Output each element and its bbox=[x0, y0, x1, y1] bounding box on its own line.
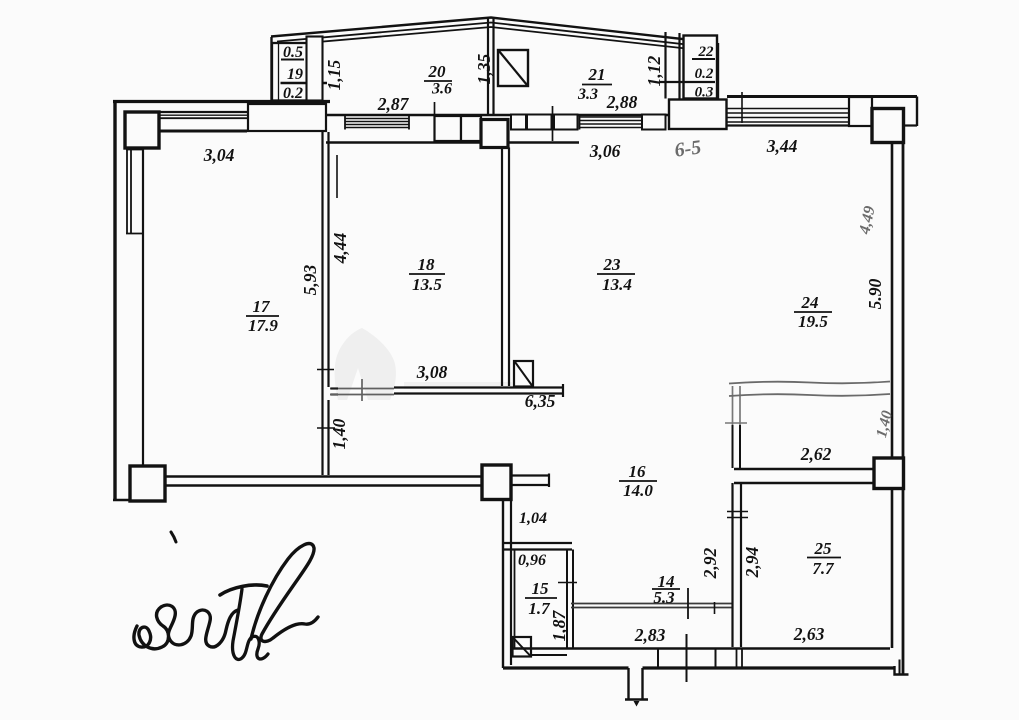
svg-text:2,87: 2,87 bbox=[377, 94, 410, 114]
svg-text:2,92: 2,92 bbox=[700, 547, 720, 579]
svg-text:15: 15 bbox=[532, 579, 550, 598]
svg-text:6,35: 6,35 bbox=[525, 391, 556, 411]
svg-text:20: 20 bbox=[428, 62, 447, 81]
svg-text:23: 23 bbox=[603, 255, 622, 274]
svg-text:4,44: 4,44 bbox=[330, 232, 350, 264]
svg-text:17: 17 bbox=[253, 297, 272, 316]
svg-text:0,96: 0,96 bbox=[518, 552, 546, 569]
svg-text:19: 19 bbox=[287, 66, 303, 83]
svg-text:3,06: 3,06 bbox=[589, 141, 621, 161]
svg-text:0.5: 0.5 bbox=[283, 44, 303, 61]
svg-text:3,44: 3,44 bbox=[766, 136, 798, 156]
svg-text:24: 24 bbox=[801, 293, 819, 312]
svg-text:17.9: 17.9 bbox=[248, 316, 278, 335]
svg-text:25: 25 bbox=[814, 539, 833, 558]
svg-text:22: 22 bbox=[698, 44, 715, 60]
svg-text:18: 18 bbox=[418, 255, 436, 274]
svg-text:6-5: 6-5 bbox=[673, 136, 702, 161]
svg-text:5.3: 5.3 bbox=[653, 588, 675, 607]
svg-text:1,35: 1,35 bbox=[474, 53, 494, 84]
svg-text:1,40: 1,40 bbox=[329, 418, 349, 449]
svg-text:1.7: 1.7 bbox=[528, 599, 551, 618]
svg-text:2,63: 2,63 bbox=[793, 624, 825, 644]
svg-text:2,88: 2,88 bbox=[606, 92, 638, 112]
svg-text:7.7: 7.7 bbox=[812, 559, 835, 578]
svg-text:1,04: 1,04 bbox=[519, 510, 547, 527]
svg-text:14.0: 14.0 bbox=[623, 481, 653, 500]
svg-text:16: 16 bbox=[629, 462, 647, 481]
svg-text:2,83: 2,83 bbox=[634, 625, 666, 645]
svg-text:3,08: 3,08 bbox=[416, 362, 448, 382]
svg-text:3.6: 3.6 bbox=[431, 81, 452, 98]
svg-text:5.90: 5.90 bbox=[865, 278, 885, 309]
svg-text:13.4: 13.4 bbox=[602, 275, 632, 294]
svg-text:19.5: 19.5 bbox=[798, 312, 828, 331]
svg-text:0.3: 0.3 bbox=[695, 85, 714, 101]
svg-text:1,87: 1,87 bbox=[549, 609, 569, 641]
svg-text:2,62: 2,62 bbox=[800, 444, 832, 464]
svg-text:0.2: 0.2 bbox=[695, 66, 714, 82]
svg-text:1,15: 1,15 bbox=[324, 59, 344, 90]
svg-text:13.5: 13.5 bbox=[412, 275, 442, 294]
svg-text:3.3: 3.3 bbox=[577, 86, 598, 103]
svg-text:1,12: 1,12 bbox=[644, 55, 664, 86]
svg-text:3,04: 3,04 bbox=[203, 145, 235, 165]
svg-text:21: 21 bbox=[588, 65, 606, 84]
svg-text:2,94: 2,94 bbox=[742, 546, 762, 578]
svg-text:0.2: 0.2 bbox=[283, 85, 303, 102]
svg-text:5,93: 5,93 bbox=[300, 264, 320, 295]
